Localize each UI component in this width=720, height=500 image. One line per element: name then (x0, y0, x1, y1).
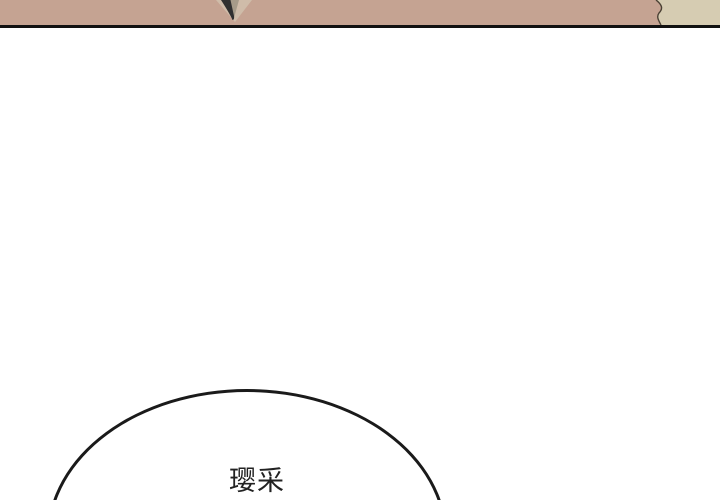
speech-bubble-text: 璎采 (229, 467, 285, 497)
panel-background-shape (0, 0, 720, 25)
comic-panel-art (0, 0, 720, 25)
comic-page: 璎采 (0, 0, 720, 500)
panel-artwork (0, 0, 720, 25)
beige-region-shape (656, 0, 720, 25)
panel-border-line (0, 25, 720, 28)
